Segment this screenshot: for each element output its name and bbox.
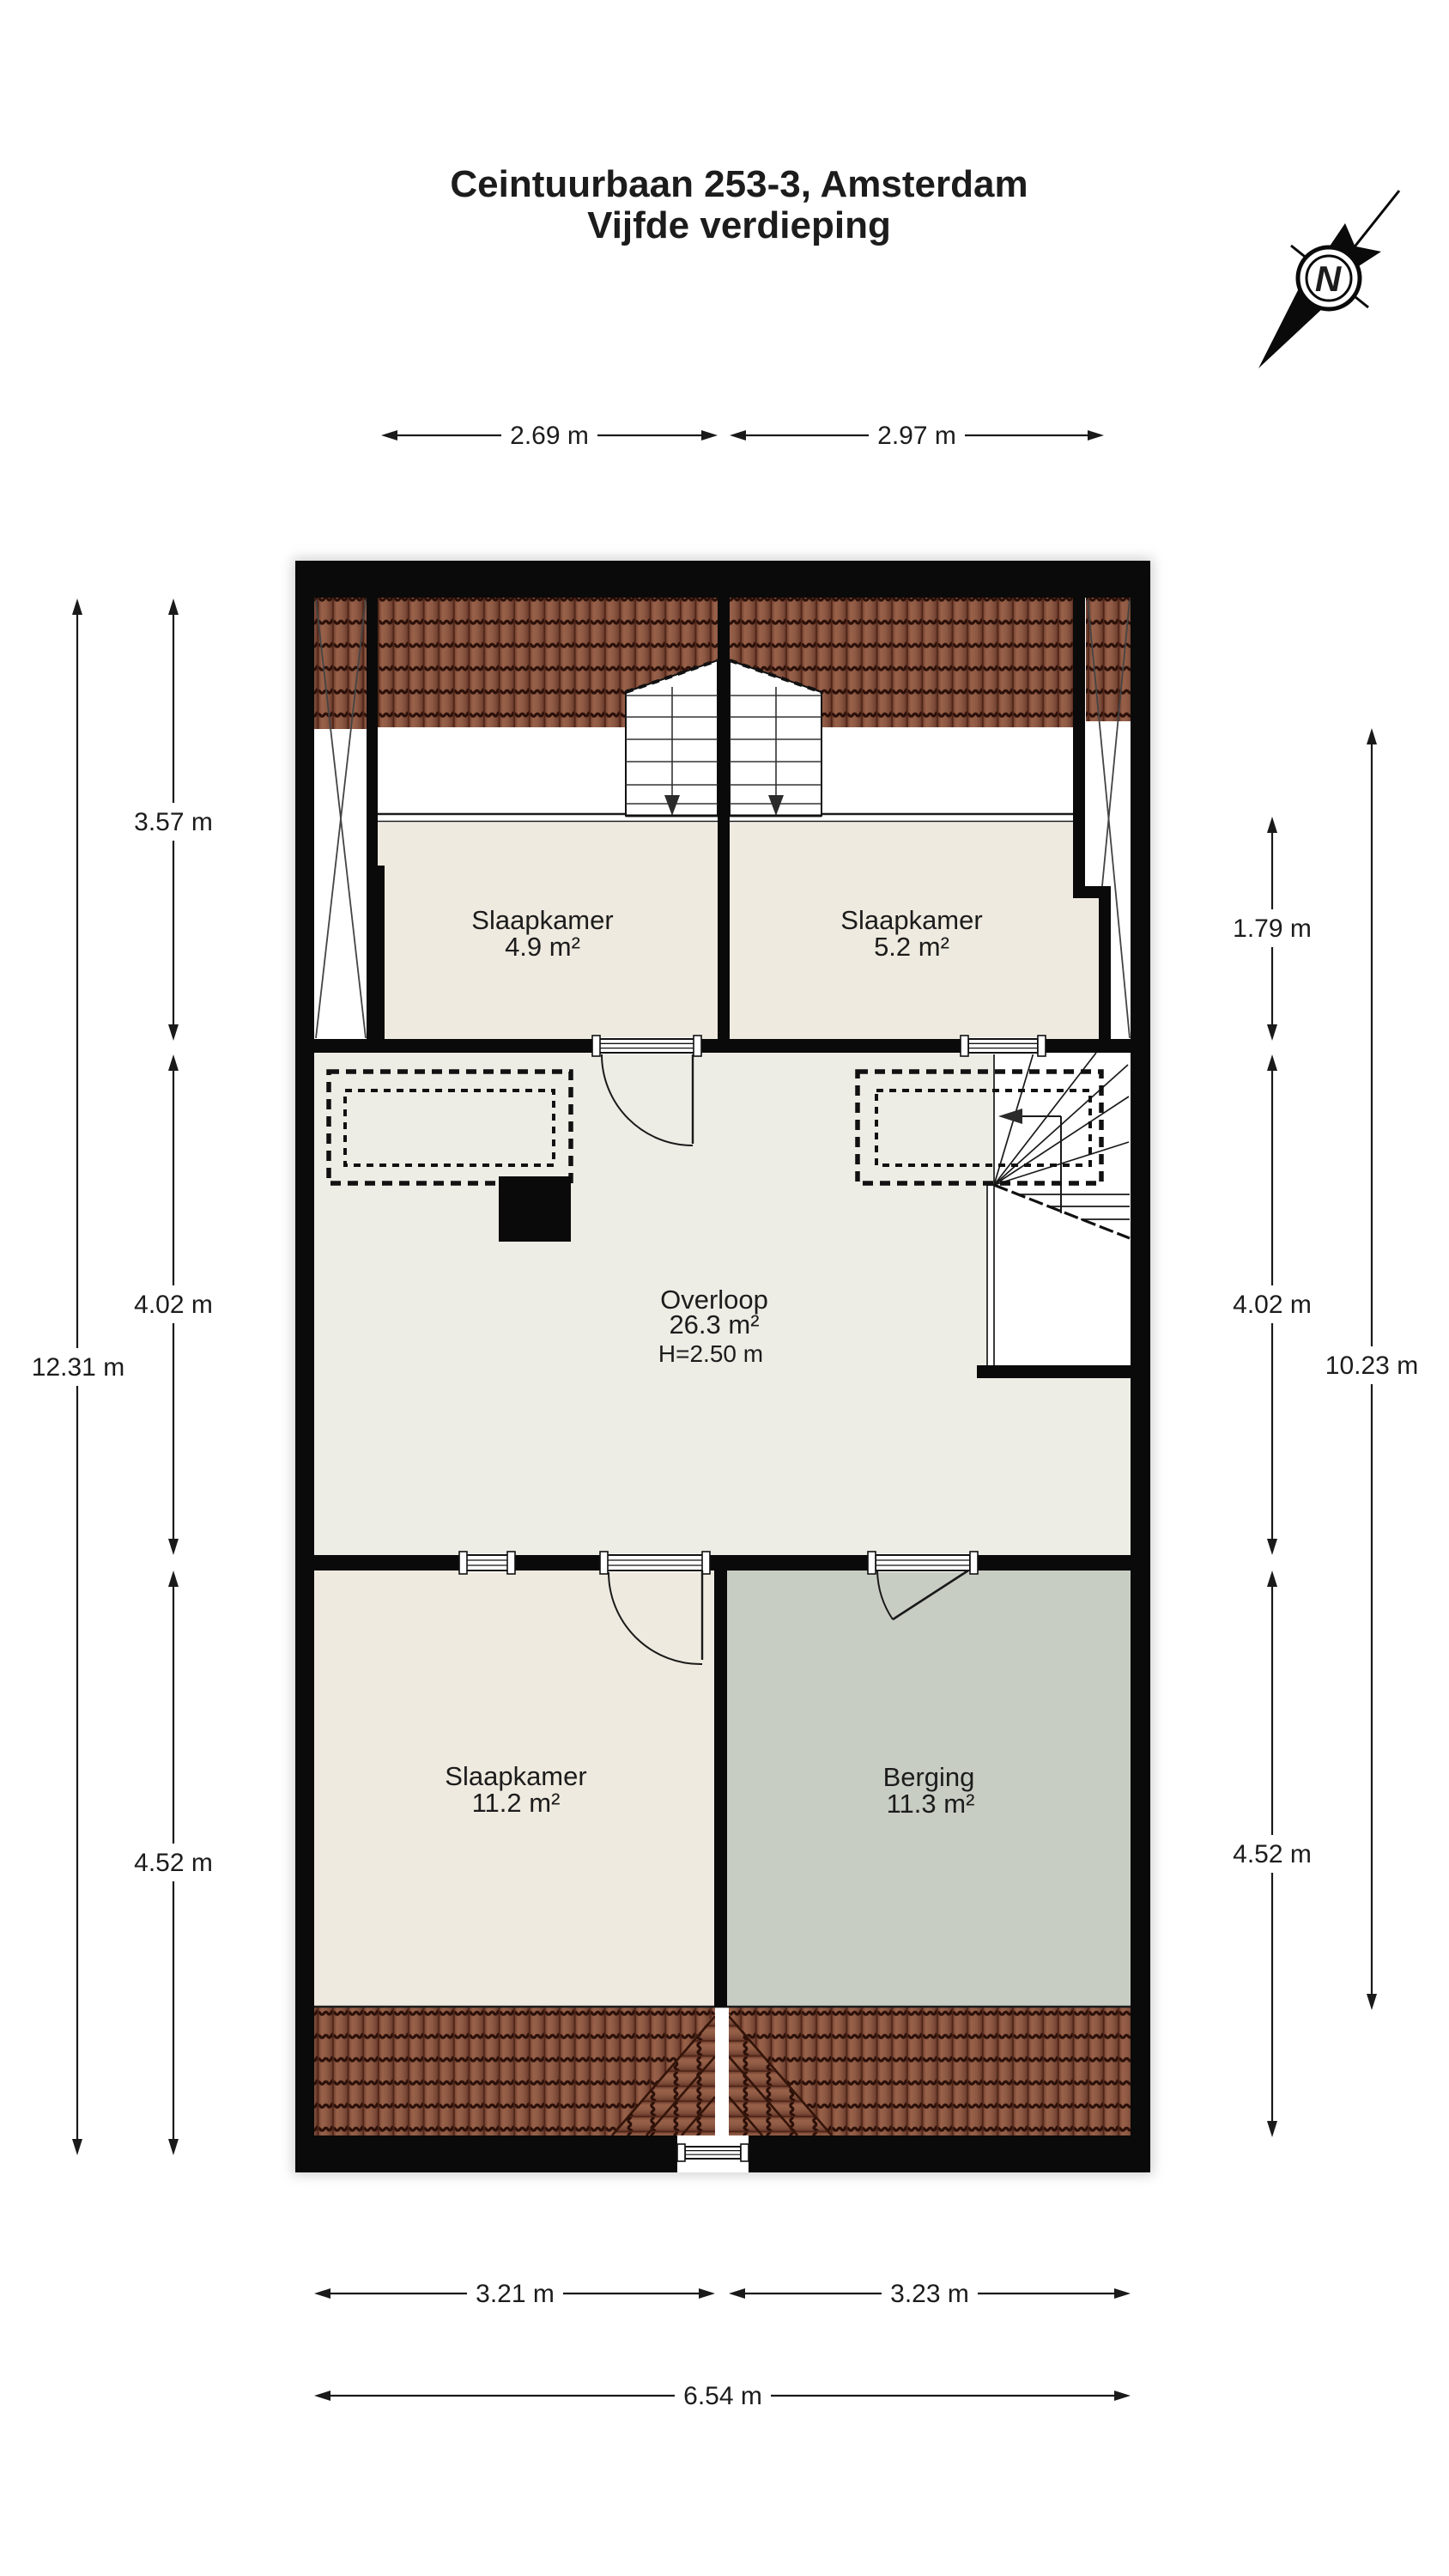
svg-text:11.3 m²: 11.3 m² <box>887 1789 975 1819</box>
svg-text:6.54 m: 6.54 m <box>683 2382 762 2410</box>
svg-text:2.69 m: 2.69 m <box>510 422 589 450</box>
svg-text:4.52 m: 4.52 m <box>1233 1840 1312 1868</box>
svg-text:Slaapkamer: Slaapkamer <box>445 1761 586 1791</box>
svg-text:Ceintuurbaan 253-3, Amsterdam: Ceintuurbaan 253-3, Amsterdam <box>450 163 1028 205</box>
svg-text:4.52 m: 4.52 m <box>134 1849 213 1877</box>
svg-text:Slaapkamer: Slaapkamer <box>840 905 982 935</box>
svg-text:1.79 m: 1.79 m <box>1233 914 1312 943</box>
svg-text:Berging: Berging <box>883 1762 975 1792</box>
svg-text:3.57 m: 3.57 m <box>134 808 213 836</box>
svg-text:Slaapkamer: Slaapkamer <box>471 905 613 935</box>
svg-text:11.2 m²: 11.2 m² <box>472 1788 561 1818</box>
svg-text:26.3 m²: 26.3 m² <box>669 1309 759 1340</box>
svg-text:3.21 m: 3.21 m <box>476 2280 555 2308</box>
svg-text:2.97 m: 2.97 m <box>877 422 956 450</box>
svg-text:12.31 m: 12.31 m <box>32 1353 124 1382</box>
svg-text:5.2 m²: 5.2 m² <box>874 932 949 962</box>
svg-text:Vijfde verdieping: Vijfde verdieping <box>587 204 891 246</box>
svg-text:N: N <box>1315 258 1343 299</box>
svg-text:3.23 m: 3.23 m <box>890 2280 969 2308</box>
svg-text:4.9 m²: 4.9 m² <box>505 932 580 962</box>
svg-text:4.02 m: 4.02 m <box>1233 1291 1312 1319</box>
svg-text:4.02 m: 4.02 m <box>134 1291 213 1319</box>
svg-text:H=2.50 m: H=2.50 m <box>658 1340 763 1367</box>
svg-text:10.23 m: 10.23 m <box>1325 1352 1418 1380</box>
